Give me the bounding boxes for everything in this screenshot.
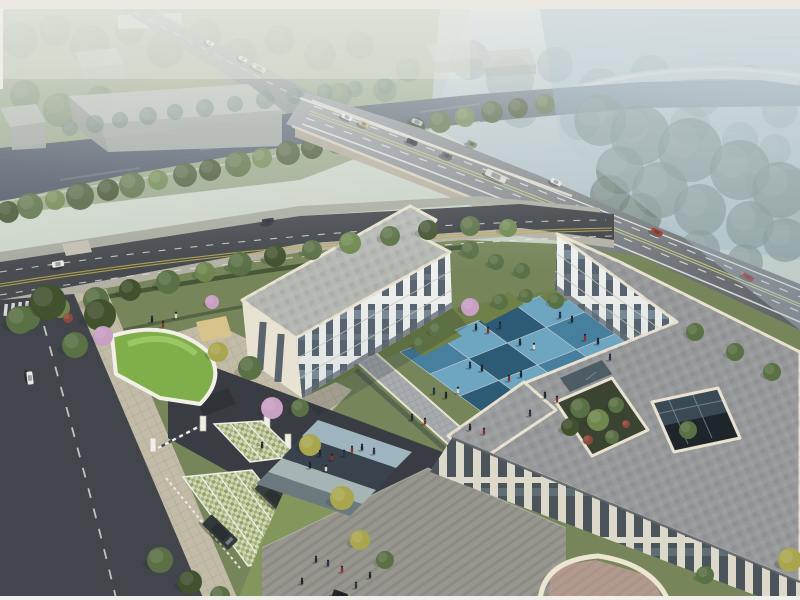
tree-highlight [64, 314, 70, 320]
person-head [597, 338, 599, 340]
person-body [361, 446, 363, 451]
person-body [469, 364, 471, 369]
person-body [151, 318, 153, 323]
person-body [309, 464, 311, 469]
person-head [433, 388, 435, 390]
tree-highlight [681, 422, 691, 432]
tree-highlight [378, 552, 388, 562]
person-head [499, 322, 501, 324]
person-head [327, 560, 329, 562]
tree-highlight [765, 364, 775, 374]
tree-highlight [414, 338, 422, 346]
person-body [499, 324, 501, 329]
car-cabin [28, 375, 33, 381]
tree-highlight [520, 290, 528, 298]
person-body [519, 341, 521, 346]
tree-highlight [149, 549, 163, 563]
person-head [556, 396, 558, 398]
person-body [475, 326, 477, 331]
person-head [319, 450, 321, 452]
person-head [301, 578, 303, 580]
person-body [319, 452, 321, 457]
aerial-rendering [0, 0, 800, 600]
person-body [457, 389, 459, 394]
person-body [533, 345, 535, 350]
person-head [475, 324, 477, 326]
tree-highlight [698, 567, 708, 577]
person-head [351, 446, 353, 448]
person-body [487, 329, 489, 334]
person-body [325, 467, 327, 472]
person-body [373, 450, 375, 455]
person-body [261, 444, 263, 449]
person-body [351, 448, 353, 453]
person-body [529, 412, 531, 417]
tree-highlight [180, 572, 193, 585]
person-head [533, 343, 535, 345]
person-head [483, 428, 485, 430]
person-body [301, 580, 303, 585]
tree-highlight [563, 419, 573, 429]
person-body [520, 373, 522, 378]
person-head [481, 365, 483, 367]
person-head [373, 448, 375, 450]
person-head [519, 339, 521, 341]
person-head [151, 316, 153, 318]
tree-highlight [87, 301, 105, 319]
person-head [457, 387, 459, 389]
tree-highlight [206, 296, 214, 304]
tree-highlight [293, 400, 303, 410]
haze-overlay-left [0, 9, 470, 79]
tree-highlight [352, 532, 363, 543]
person-body [341, 568, 343, 573]
tree-highlight [589, 411, 601, 423]
person-body [355, 584, 357, 589]
person-head [309, 462, 311, 464]
tree-highlight [33, 287, 53, 307]
person-head [559, 312, 561, 314]
person-body [424, 420, 426, 425]
person-body [411, 416, 413, 421]
person-head [508, 375, 510, 377]
person-head [162, 321, 164, 323]
person-head [331, 454, 333, 456]
tree-highlight [263, 399, 275, 411]
tree-highlight [95, 328, 106, 339]
person-head [520, 371, 522, 373]
tree-highlight [780, 550, 793, 563]
person-body [584, 336, 586, 341]
person-head [261, 442, 263, 444]
tree-highlight [8, 308, 23, 323]
person-body [556, 398, 558, 403]
person-head [584, 334, 586, 336]
person-head [469, 362, 471, 364]
person-body [609, 356, 611, 361]
person-body [559, 314, 561, 319]
tree-highlight [240, 358, 253, 371]
tree-highlight [493, 295, 502, 304]
person-body [544, 394, 546, 399]
tree-highlight [430, 323, 439, 332]
tree-highlight [688, 324, 698, 334]
person-head [369, 572, 371, 574]
person-head [315, 556, 317, 558]
person-body [315, 558, 317, 563]
person-body [343, 452, 345, 457]
rendering-canvas [0, 0, 800, 600]
person-body [483, 430, 485, 435]
tree-highlight [623, 421, 627, 425]
person-head [469, 424, 471, 426]
person-body [445, 394, 447, 399]
tree-highlight [64, 334, 78, 348]
tree-highlight [549, 294, 558, 303]
person-body [571, 318, 573, 323]
person-head [445, 392, 447, 394]
person-body [175, 314, 177, 319]
tree-highlight [728, 344, 738, 354]
person-head [411, 414, 413, 416]
person-body [331, 456, 333, 461]
person-head [175, 312, 177, 314]
person-body [369, 574, 371, 579]
tree-highlight [606, 431, 614, 439]
person-head [487, 327, 489, 329]
person-head [571, 316, 573, 318]
tree-highlight [609, 398, 618, 407]
person-body [469, 426, 471, 431]
gate-pillar [200, 416, 206, 431]
person-head [325, 465, 327, 467]
person-body [433, 390, 435, 395]
person-body [597, 340, 599, 345]
tree-highlight [121, 281, 133, 293]
person-head [529, 410, 531, 412]
tree-highlight [210, 344, 221, 355]
tree-highlight [463, 299, 473, 309]
person-body [481, 367, 483, 372]
person-head [544, 392, 546, 394]
person-body [162, 323, 164, 328]
tree-highlight [332, 488, 345, 501]
tree-highlight [301, 436, 313, 448]
gate-pillar [150, 438, 156, 452]
tree-highlight [584, 436, 590, 442]
person-head [343, 450, 345, 452]
person-head [355, 582, 357, 584]
tree-highlight [158, 272, 171, 285]
person-head [609, 354, 611, 356]
person-body [327, 562, 329, 567]
person-body [508, 377, 510, 382]
person-head [341, 566, 343, 568]
person-head [361, 444, 363, 446]
tree-highlight [572, 400, 583, 411]
person-head [424, 418, 426, 420]
